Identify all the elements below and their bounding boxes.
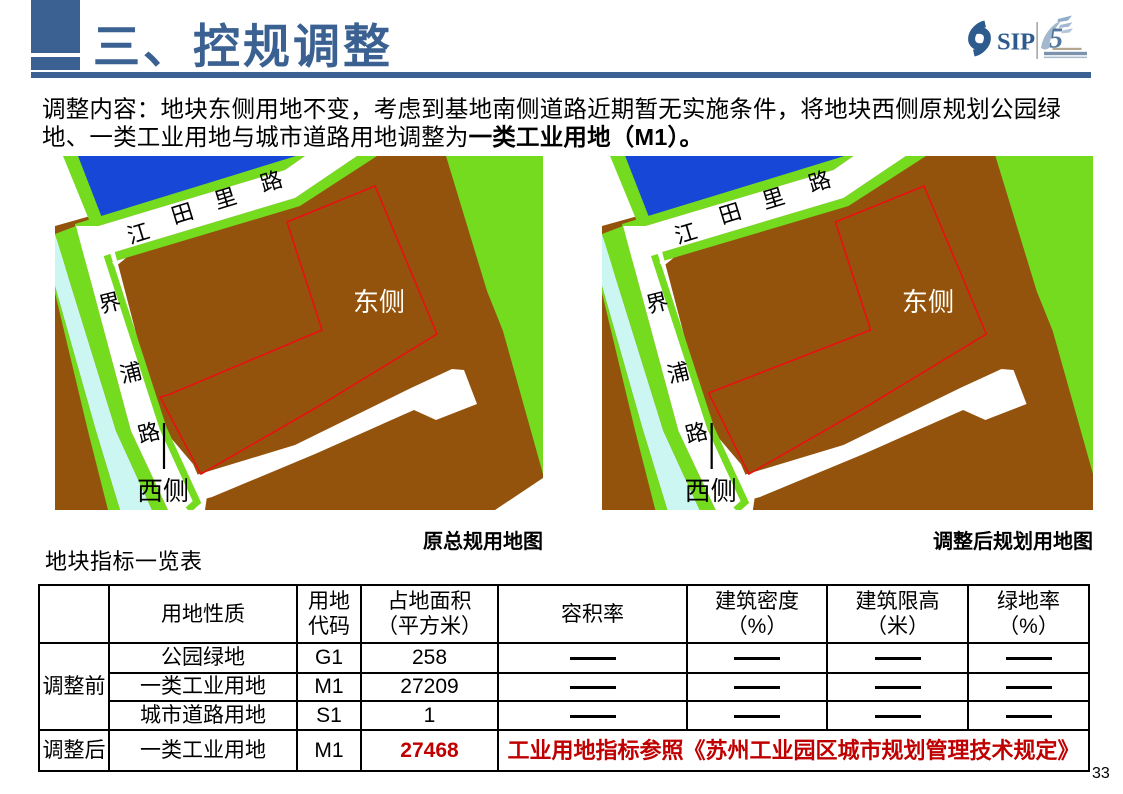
svg-text:东侧: 东侧 xyxy=(902,287,954,317)
svg-text:西侧: 西侧 xyxy=(685,476,737,506)
svg-text:SIP: SIP xyxy=(997,29,1035,56)
svg-text:西侧: 西侧 xyxy=(137,476,189,506)
svg-text:东侧: 东侧 xyxy=(353,287,405,317)
